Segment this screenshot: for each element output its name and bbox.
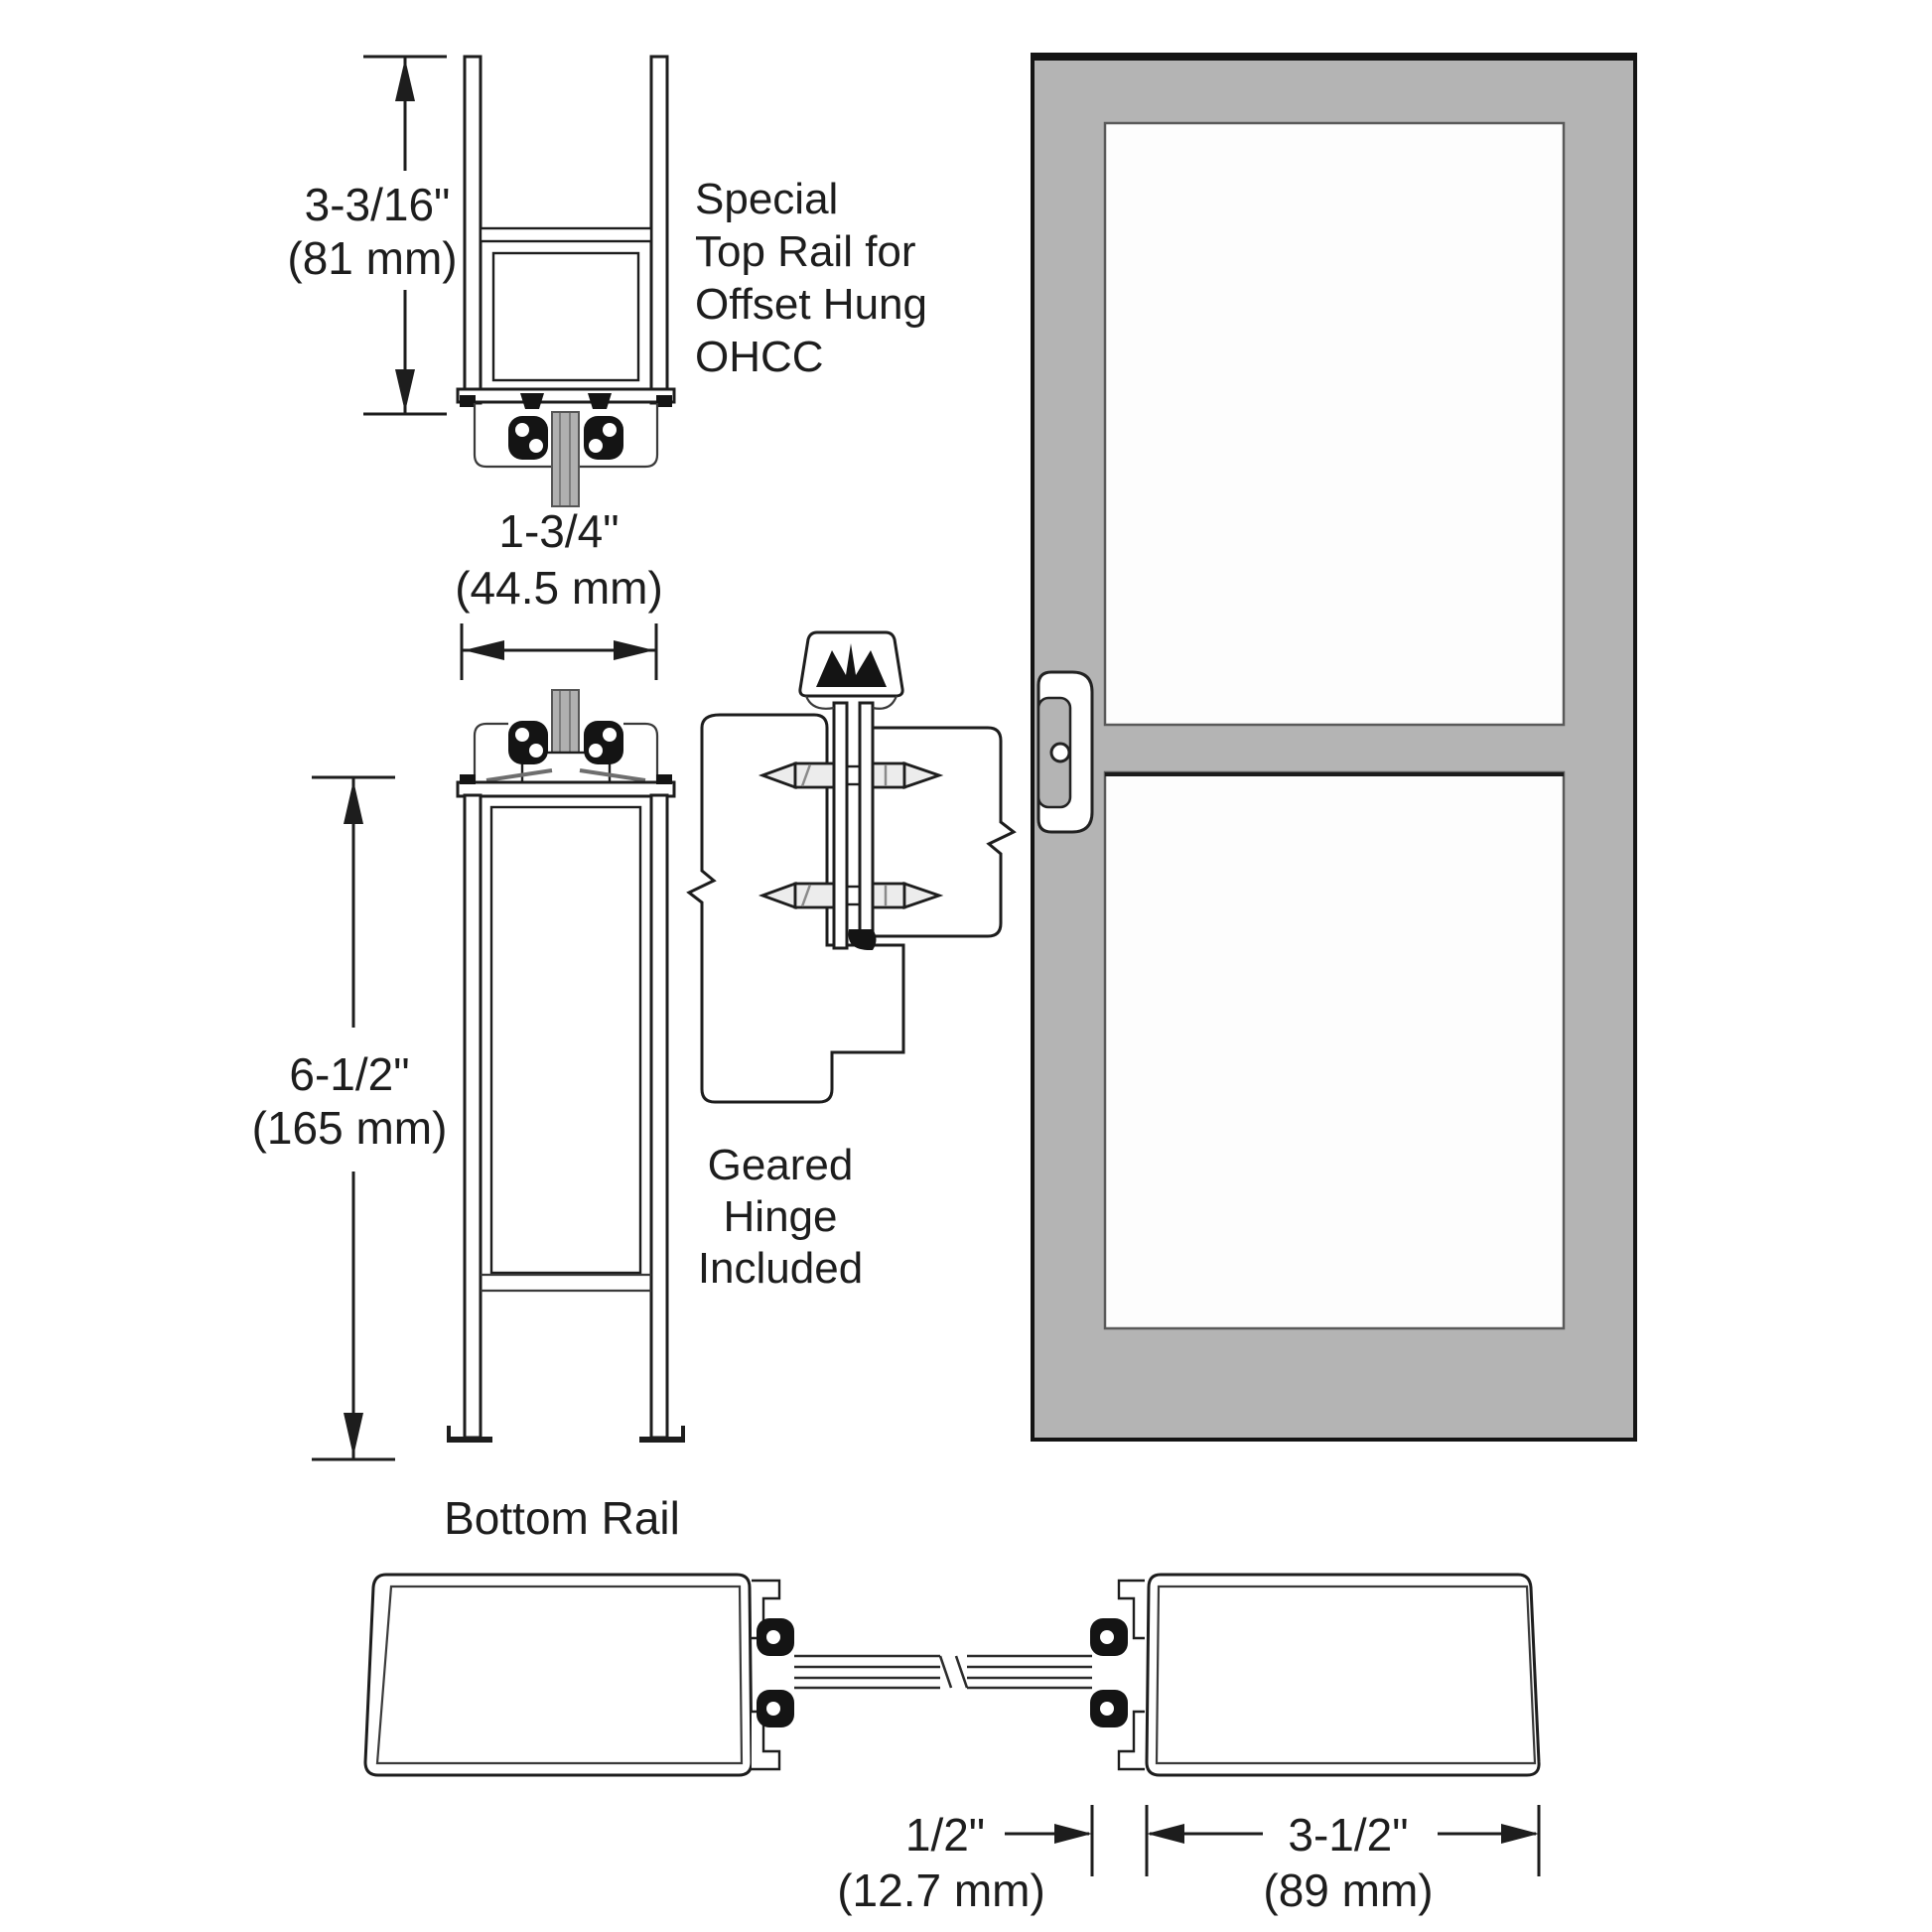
dim-bottom-rail-height: 6-1/2" (165 mm)	[252, 777, 448, 1459]
dim-text-top-rail-width-in: 1-3/4"	[498, 505, 619, 557]
gasket-detail	[589, 744, 603, 758]
glazing-gasket	[584, 416, 623, 460]
dim-text-bottom-rail-height-in: 6-1/2"	[289, 1048, 409, 1100]
diagram-canvas: 3-3/16" (81 mm) Special Top Rail for Off…	[0, 0, 1932, 1932]
note-geared-hinge: Geared Hinge Included	[698, 1141, 863, 1293]
gasket-channel-left	[475, 724, 508, 782]
dim-text-top-rail-width-mm: (44.5 mm)	[455, 562, 663, 614]
bottom-rail-hollow	[491, 807, 640, 1273]
glazing-gasket	[584, 721, 623, 764]
dim-text-glass-pocket-mm: (12.7 mm)	[837, 1864, 1045, 1916]
note-line: Geared	[708, 1141, 854, 1189]
clip-mark	[460, 395, 476, 407]
note-line: Included	[698, 1244, 863, 1293]
gasket-detail	[766, 1702, 780, 1716]
glazing-gasket	[508, 721, 548, 764]
stile-horizontal-section	[365, 1575, 1539, 1775]
top-rail-pocket	[493, 253, 638, 380]
door-glass-lower	[1105, 772, 1564, 1328]
dim-top-rail-width: 1-3/4" (44.5 mm)	[455, 505, 663, 680]
clip-mark	[520, 393, 544, 409]
gasket-detail	[766, 1630, 780, 1644]
hinge-leaf-left	[834, 703, 847, 948]
top-rail-left-wall	[465, 57, 481, 403]
hinge-neck	[873, 696, 897, 709]
gasket-detail	[529, 439, 543, 453]
glass-edge-section	[552, 412, 579, 506]
gasket-detail	[589, 439, 603, 453]
dim-stile-width: 3-1/2" (89 mm)	[1263, 1805, 1539, 1916]
bottom-rail-section	[447, 690, 685, 1440]
left-stile-profile	[365, 1575, 752, 1775]
dim-text-top-rail-height-mm: (81 mm)	[287, 232, 457, 284]
dim-text-stile-width-in: 3-1/2"	[1288, 1809, 1408, 1861]
dim-text-top-rail-height-in: 3-3/16"	[305, 179, 451, 230]
glazing-gasket	[508, 416, 548, 460]
dim-glass-pocket: 1/2" (12.7 mm)	[837, 1805, 1263, 1916]
right-stile-profile	[1147, 1575, 1539, 1775]
gasket-detail	[529, 744, 543, 758]
label-bottom-rail: Bottom Rail	[444, 1492, 680, 1544]
clip-mark	[588, 393, 612, 409]
note-line: Top Rail for	[695, 227, 916, 276]
gasket-detail	[1100, 1702, 1114, 1716]
glass-edge-section	[552, 690, 579, 756]
geared-hinge-detail	[689, 632, 1014, 1102]
clip-mark	[656, 774, 672, 784]
gasket-detail	[515, 728, 529, 742]
hinge-neck	[806, 696, 834, 709]
note-line: OHCC	[695, 333, 824, 381]
note-line: Offset Hung	[695, 280, 927, 329]
top-rail-web	[481, 228, 651, 241]
glass-horizontal-section	[794, 1656, 1092, 1688]
gasket-detail	[515, 423, 529, 437]
door-elevation	[1031, 53, 1637, 1440]
note-line: Special	[695, 175, 838, 223]
hinge-screw	[762, 884, 939, 907]
gasket-detail	[603, 728, 617, 742]
bottom-rail-left-wall	[465, 795, 481, 1438]
clip-mark	[656, 395, 672, 407]
top-rail-bottom-plate	[458, 389, 674, 402]
clip-mark	[460, 774, 476, 784]
door-technical-drawing: 3-3/16" (81 mm) Special Top Rail for Off…	[0, 0, 1932, 1932]
dim-text-bottom-rail-height-mm: (165 mm)	[252, 1102, 448, 1154]
gasket-detail	[1100, 1630, 1114, 1644]
gasket-detail	[603, 423, 617, 437]
hinge-leaf-right	[860, 703, 873, 941]
door-top-edge	[1031, 53, 1637, 61]
dim-top-rail-height: 3-3/16" (81 mm)	[287, 57, 457, 414]
bottom-rail-right-wall	[651, 795, 667, 1438]
dim-text-stile-width-mm: (89 mm)	[1263, 1864, 1433, 1916]
door-glass-upper	[1105, 123, 1564, 725]
top-rail-section	[458, 57, 674, 506]
gasket-channel-right	[623, 724, 657, 782]
note-special-top-rail: Special Top Rail for Offset Hung OHCC	[695, 175, 927, 381]
hinge-screw	[762, 763, 939, 787]
bottom-rail-top-plate	[458, 782, 674, 796]
lock-cylinder	[1051, 744, 1069, 761]
dim-text-glass-pocket-in: 1/2"	[905, 1809, 985, 1861]
note-line: Hinge	[724, 1192, 838, 1241]
top-rail-right-wall	[651, 57, 667, 403]
